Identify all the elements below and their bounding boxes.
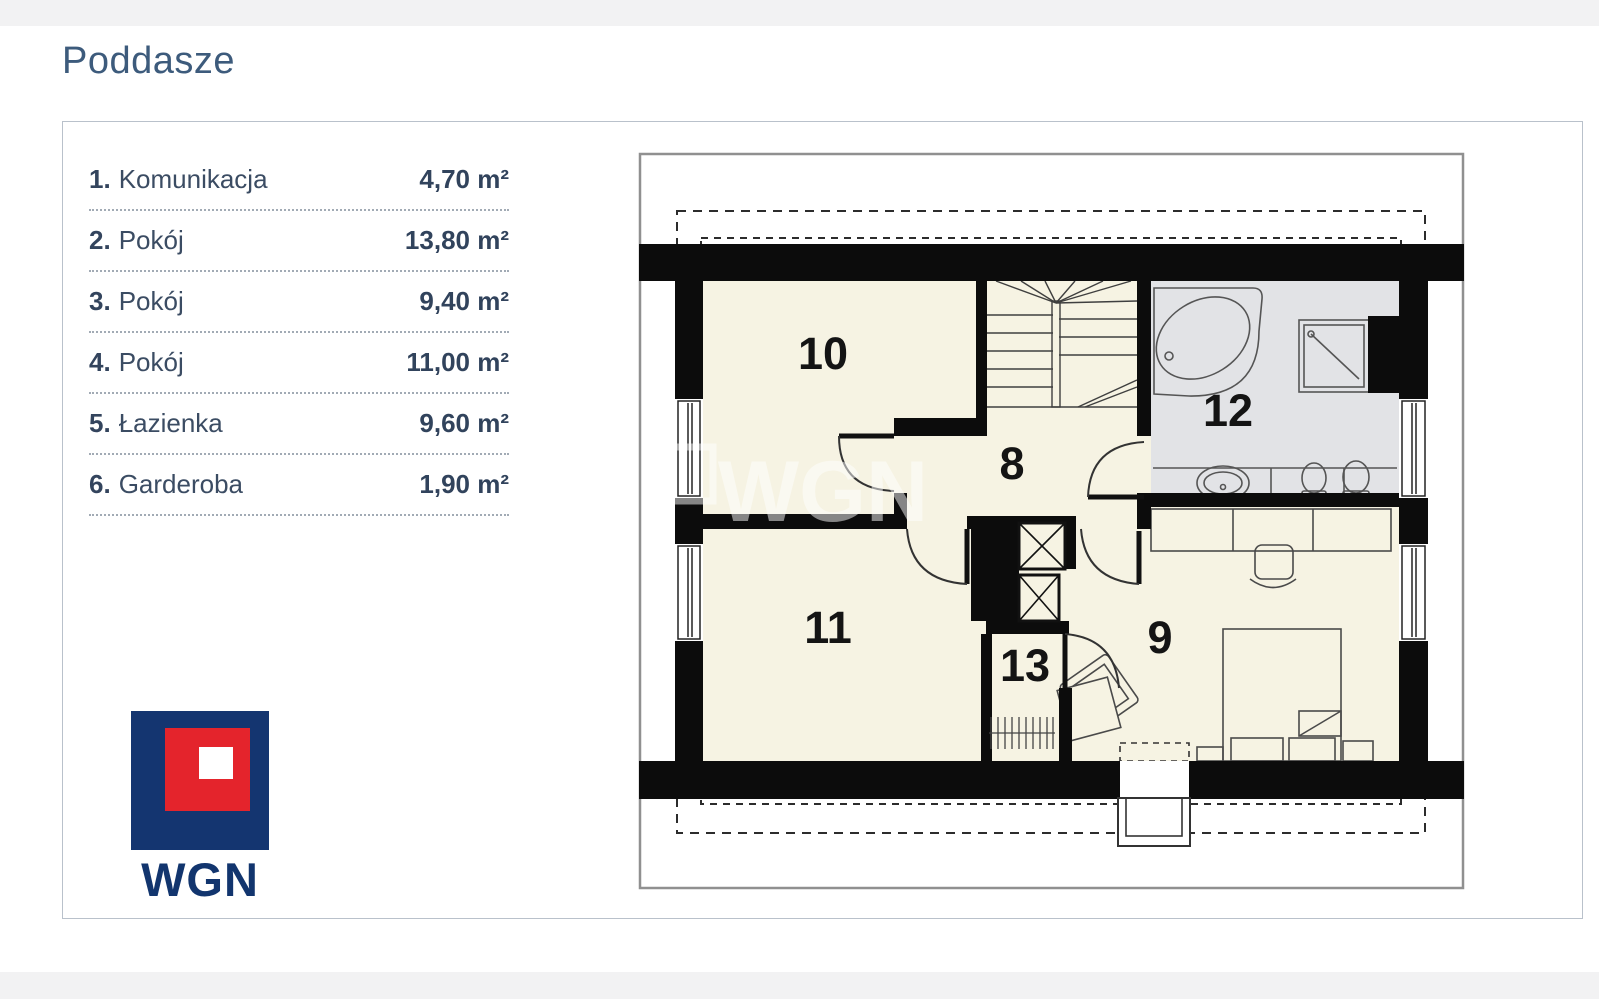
- legend-row: 3. Pokój 9,40 m²: [89, 272, 509, 333]
- room-name: Garderoba: [119, 469, 243, 500]
- room-number: 3.: [89, 286, 111, 317]
- wgn-logo: WGN: [131, 711, 331, 907]
- page: Poddasze 1. Komunikacja 4,70 m² 2. Pokój…: [0, 0, 1599, 999]
- room-area: 9,40 m²: [419, 286, 509, 317]
- room-label-13: 13: [1000, 640, 1050, 691]
- watermark-text: WGN: [718, 444, 928, 540]
- room-legend: 1. Komunikacja 4,70 m² 2. Pokój 13,80 m²…: [89, 150, 509, 516]
- room-number: 1.: [89, 164, 111, 195]
- room-name: Łazienka: [119, 408, 223, 439]
- room-label-11: 11: [804, 602, 852, 653]
- wall-right: [1399, 281, 1428, 761]
- bottom-strip: [0, 972, 1599, 999]
- room-number: 4.: [89, 347, 111, 378]
- floor-plan: 10 8 12 11 13 9 WGN: [621, 136, 1476, 901]
- room-label-8: 8: [999, 438, 1024, 489]
- floor-plan-drawing: 10 8 12 11 13 9 WGN: [621, 136, 1476, 901]
- legend-row: 2. Pokój 13,80 m²: [89, 211, 509, 272]
- content-card: 1. Komunikacja 4,70 m² 2. Pokój 13,80 m²…: [62, 121, 1583, 919]
- page-title: Poddasze: [62, 40, 235, 83]
- wgn-logo-icon: [131, 711, 269, 850]
- room-number: 2.: [89, 225, 111, 256]
- room-area: 9,60 m²: [419, 408, 509, 439]
- legend-row: 1. Komunikacja 4,70 m²: [89, 150, 509, 211]
- room-number: 5.: [89, 408, 111, 439]
- room-label-12: 12: [1203, 385, 1253, 436]
- wall-top: [639, 244, 1464, 281]
- legend-row: 5. Łazienka 9,60 m²: [89, 394, 509, 455]
- wgn-logo-text: WGN: [131, 852, 269, 907]
- room-label-9: 9: [1147, 612, 1172, 663]
- room-name: Komunikacja: [119, 164, 268, 195]
- wall-bottom: [639, 761, 1464, 799]
- room-name: Pokój: [119, 286, 184, 317]
- room-area: 13,80 m²: [405, 225, 509, 256]
- room-name: Pokój: [119, 225, 184, 256]
- room-label-10: 10: [798, 328, 848, 379]
- top-strip: [0, 0, 1599, 26]
- legend-row: 6. Garderoba 1,90 m²: [89, 455, 509, 516]
- room-area: 1,90 m²: [419, 469, 509, 500]
- balcony-door-icon: [1118, 798, 1190, 846]
- room-area: 11,00 m²: [406, 347, 509, 378]
- legend-row: 4. Pokój 11,00 m²: [89, 333, 509, 394]
- room-name: Pokój: [119, 347, 184, 378]
- chimney: [971, 516, 1019, 621]
- room-number: 6.: [89, 469, 111, 500]
- balcony-door: [1118, 761, 1190, 846]
- room-area: 4,70 m²: [419, 164, 509, 195]
